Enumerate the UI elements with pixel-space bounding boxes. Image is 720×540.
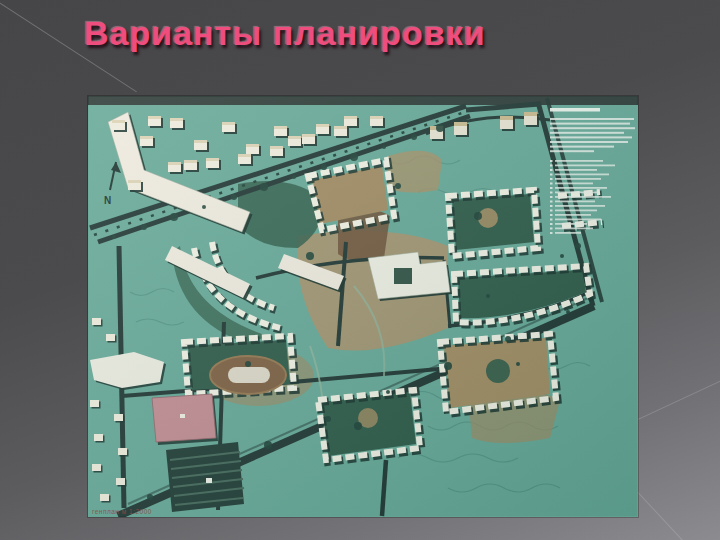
site-plan-svg: N генплан м 1:2000 — [88, 96, 638, 517]
parking-lot — [166, 442, 244, 512]
slide-title: Варианты планировки — [84, 14, 486, 53]
legend-title-line — [550, 108, 600, 112]
site-plan-image: N генплан м 1:2000 — [88, 96, 638, 517]
pink-building — [152, 394, 218, 445]
map-caption: генплан м 1:2000 — [92, 508, 152, 515]
north-label: N — [104, 195, 111, 206]
presentation-slide: Варианты планировки — [0, 0, 720, 540]
